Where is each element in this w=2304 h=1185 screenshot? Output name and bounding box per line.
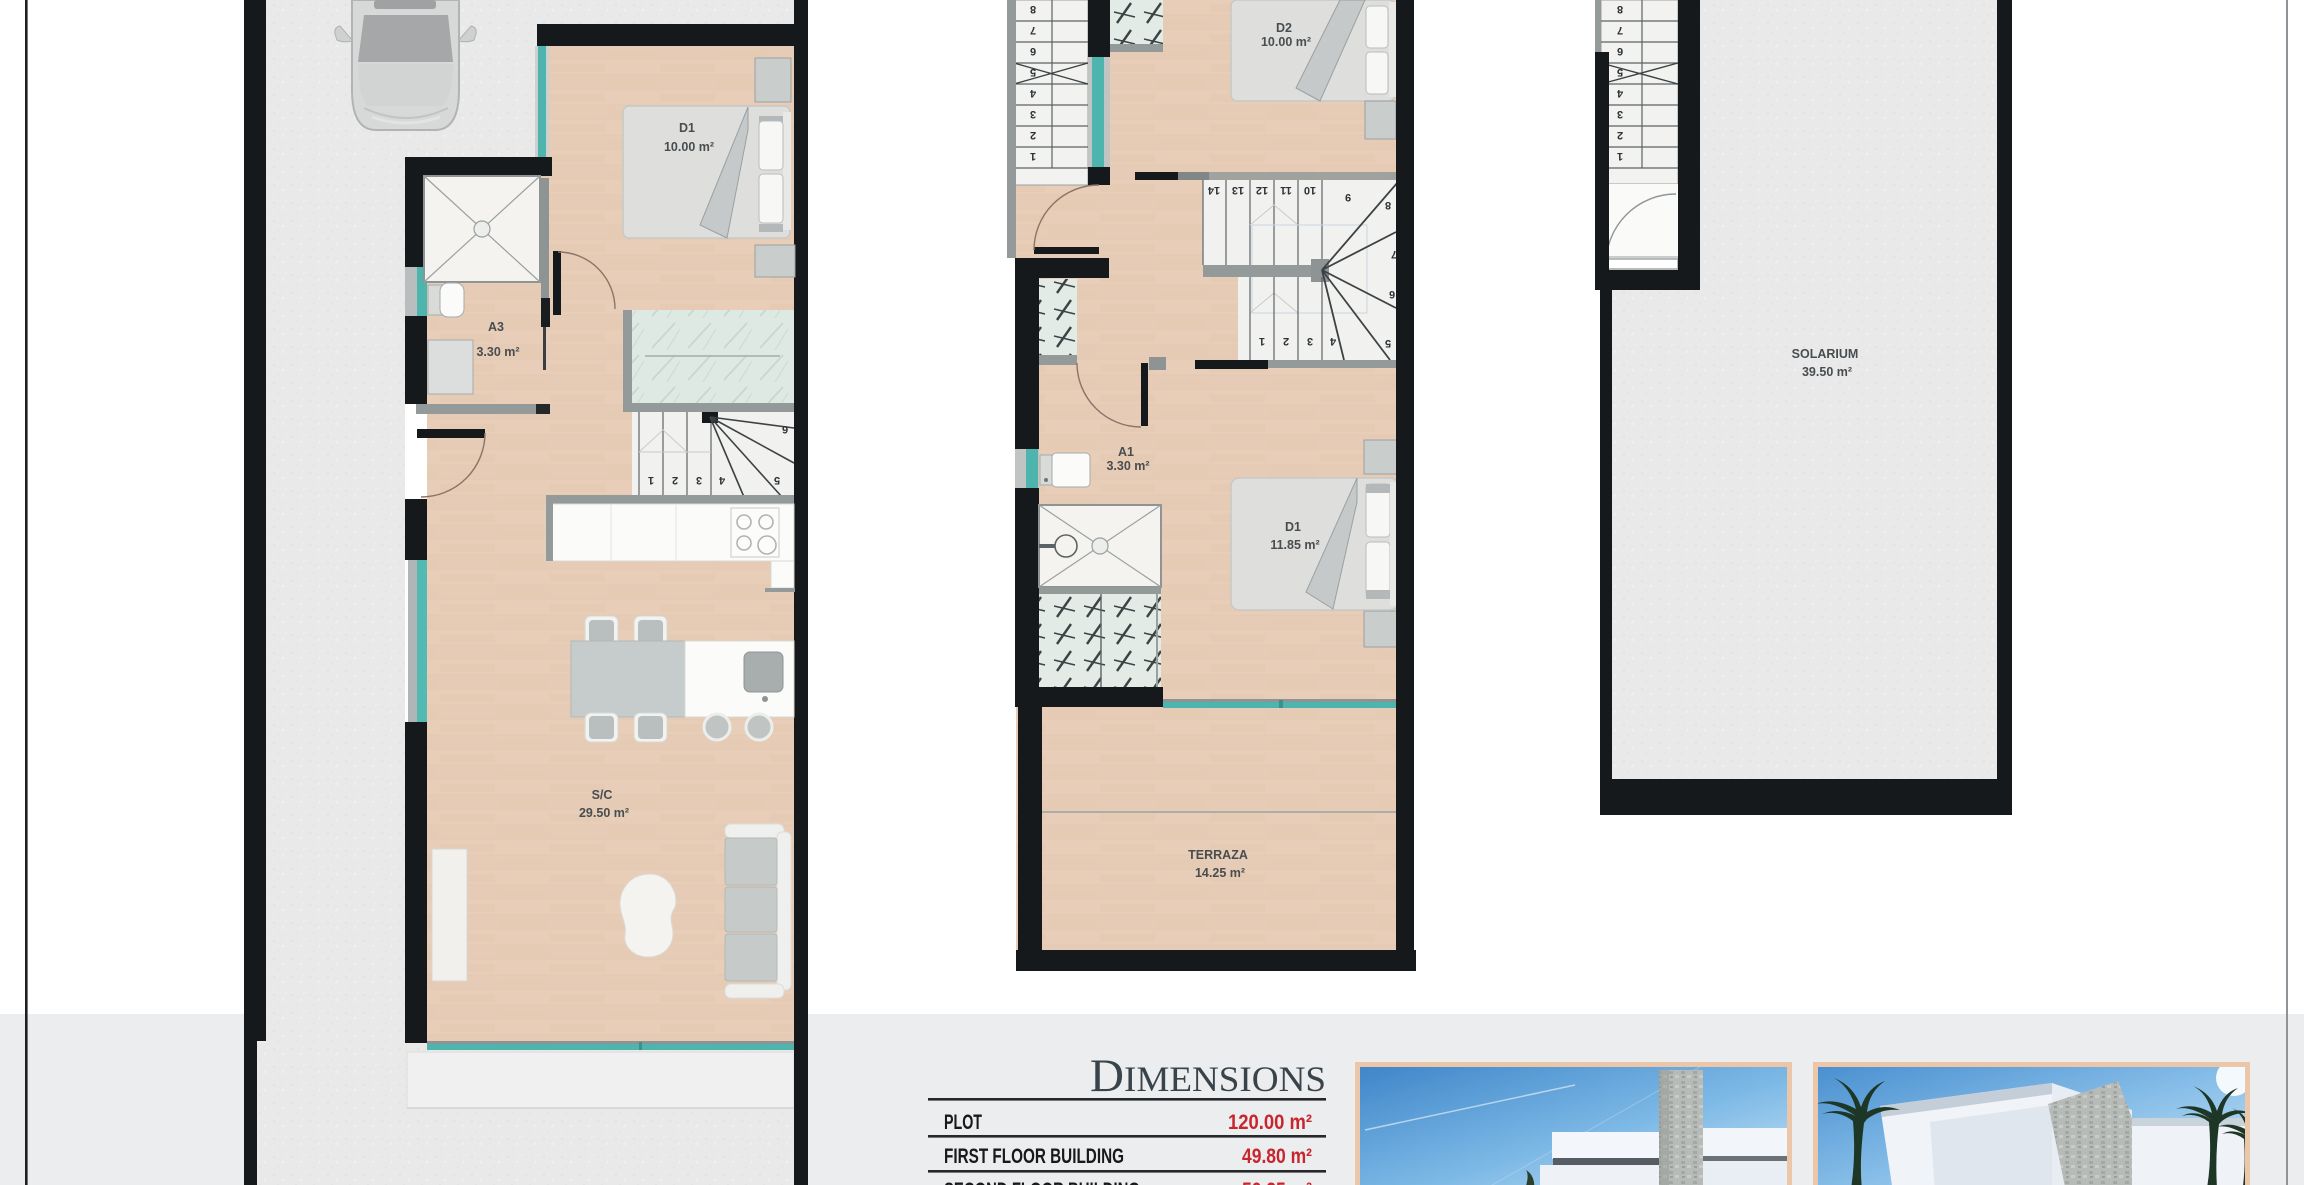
svg-text:49.80 m²: 49.80 m² (1242, 1145, 1312, 1168)
svg-text:2: 2 (672, 474, 678, 486)
svg-text:29.50 m²: 29.50 m² (579, 806, 629, 820)
svg-text:S/C: S/C (592, 788, 613, 802)
svg-text:5: 5 (1030, 66, 1036, 78)
svg-text:TERRAZA: TERRAZA (1188, 848, 1248, 862)
svg-text:IMENSIONS: IMENSIONS (1124, 1059, 1326, 1099)
svg-text:3.30 m²: 3.30 m² (476, 345, 519, 359)
svg-text:3: 3 (1030, 108, 1036, 120)
svg-text:9: 9 (1345, 191, 1351, 203)
svg-text:2: 2 (1030, 129, 1036, 141)
svg-text:14: 14 (1207, 184, 1220, 196)
svg-text:11.85 m²: 11.85 m² (1270, 538, 1319, 552)
svg-text:5: 5 (774, 474, 780, 486)
svg-text:PLOT: PLOT (944, 1111, 982, 1134)
svg-text:7: 7 (1030, 24, 1036, 36)
svg-text:A1: A1 (1118, 445, 1134, 459)
svg-text:50.25 m²: 50.25 m² (1242, 1179, 1312, 1185)
svg-text:1: 1 (1617, 150, 1623, 162)
svg-text:SECOND FLOOR BUILDING: SECOND FLOOR BUILDING (944, 1179, 1140, 1185)
svg-text:120.00 m²: 120.00 m² (1228, 1111, 1312, 1134)
svg-text:D1: D1 (1285, 520, 1301, 534)
svg-text:5: 5 (1617, 66, 1623, 78)
svg-text:FIRST FLOOR BUILDING: FIRST FLOOR BUILDING (944, 1145, 1124, 1168)
svg-text:12: 12 (1256, 184, 1268, 196)
svg-text:6: 6 (1617, 45, 1623, 57)
svg-text:6: 6 (782, 423, 788, 435)
svg-text:D1: D1 (679, 121, 695, 135)
svg-text:SOLARIUM: SOLARIUM (1792, 347, 1859, 361)
svg-text:6: 6 (1030, 45, 1036, 57)
svg-text:8: 8 (1385, 199, 1391, 211)
svg-text:1: 1 (1030, 150, 1036, 162)
svg-text:8: 8 (1030, 3, 1036, 15)
svg-text:D2: D2 (1276, 21, 1292, 35)
svg-text:7: 7 (1617, 24, 1623, 36)
svg-text:4: 4 (718, 474, 725, 486)
svg-text:4: 4 (1029, 87, 1036, 99)
svg-text:11: 11 (1280, 184, 1292, 196)
svg-text:3.30 m²: 3.30 m² (1106, 459, 1149, 473)
svg-text:10.00 m²: 10.00 m² (664, 140, 714, 154)
svg-text:5: 5 (1385, 337, 1391, 349)
svg-text:8: 8 (1617, 3, 1623, 15)
svg-text:3: 3 (1307, 335, 1313, 347)
svg-text:14.25 m²: 14.25 m² (1195, 866, 1245, 880)
svg-text:13: 13 (1232, 184, 1244, 196)
svg-text:1: 1 (648, 474, 654, 486)
svg-text:39.50 m²: 39.50 m² (1802, 365, 1852, 379)
svg-text:4: 4 (1616, 87, 1623, 99)
svg-text:3: 3 (1617, 108, 1623, 120)
svg-text:10.00 m²: 10.00 m² (1261, 35, 1311, 49)
svg-text:10: 10 (1304, 184, 1316, 196)
svg-text:2: 2 (1617, 129, 1623, 141)
svg-text:4: 4 (1329, 335, 1336, 347)
svg-text:2: 2 (1283, 335, 1289, 347)
svg-text:1: 1 (1259, 335, 1265, 347)
svg-text:A3: A3 (488, 320, 504, 334)
svg-text:6: 6 (1389, 288, 1395, 300)
svg-text:3: 3 (696, 474, 702, 486)
svg-text:D: D (1090, 1050, 1124, 1102)
